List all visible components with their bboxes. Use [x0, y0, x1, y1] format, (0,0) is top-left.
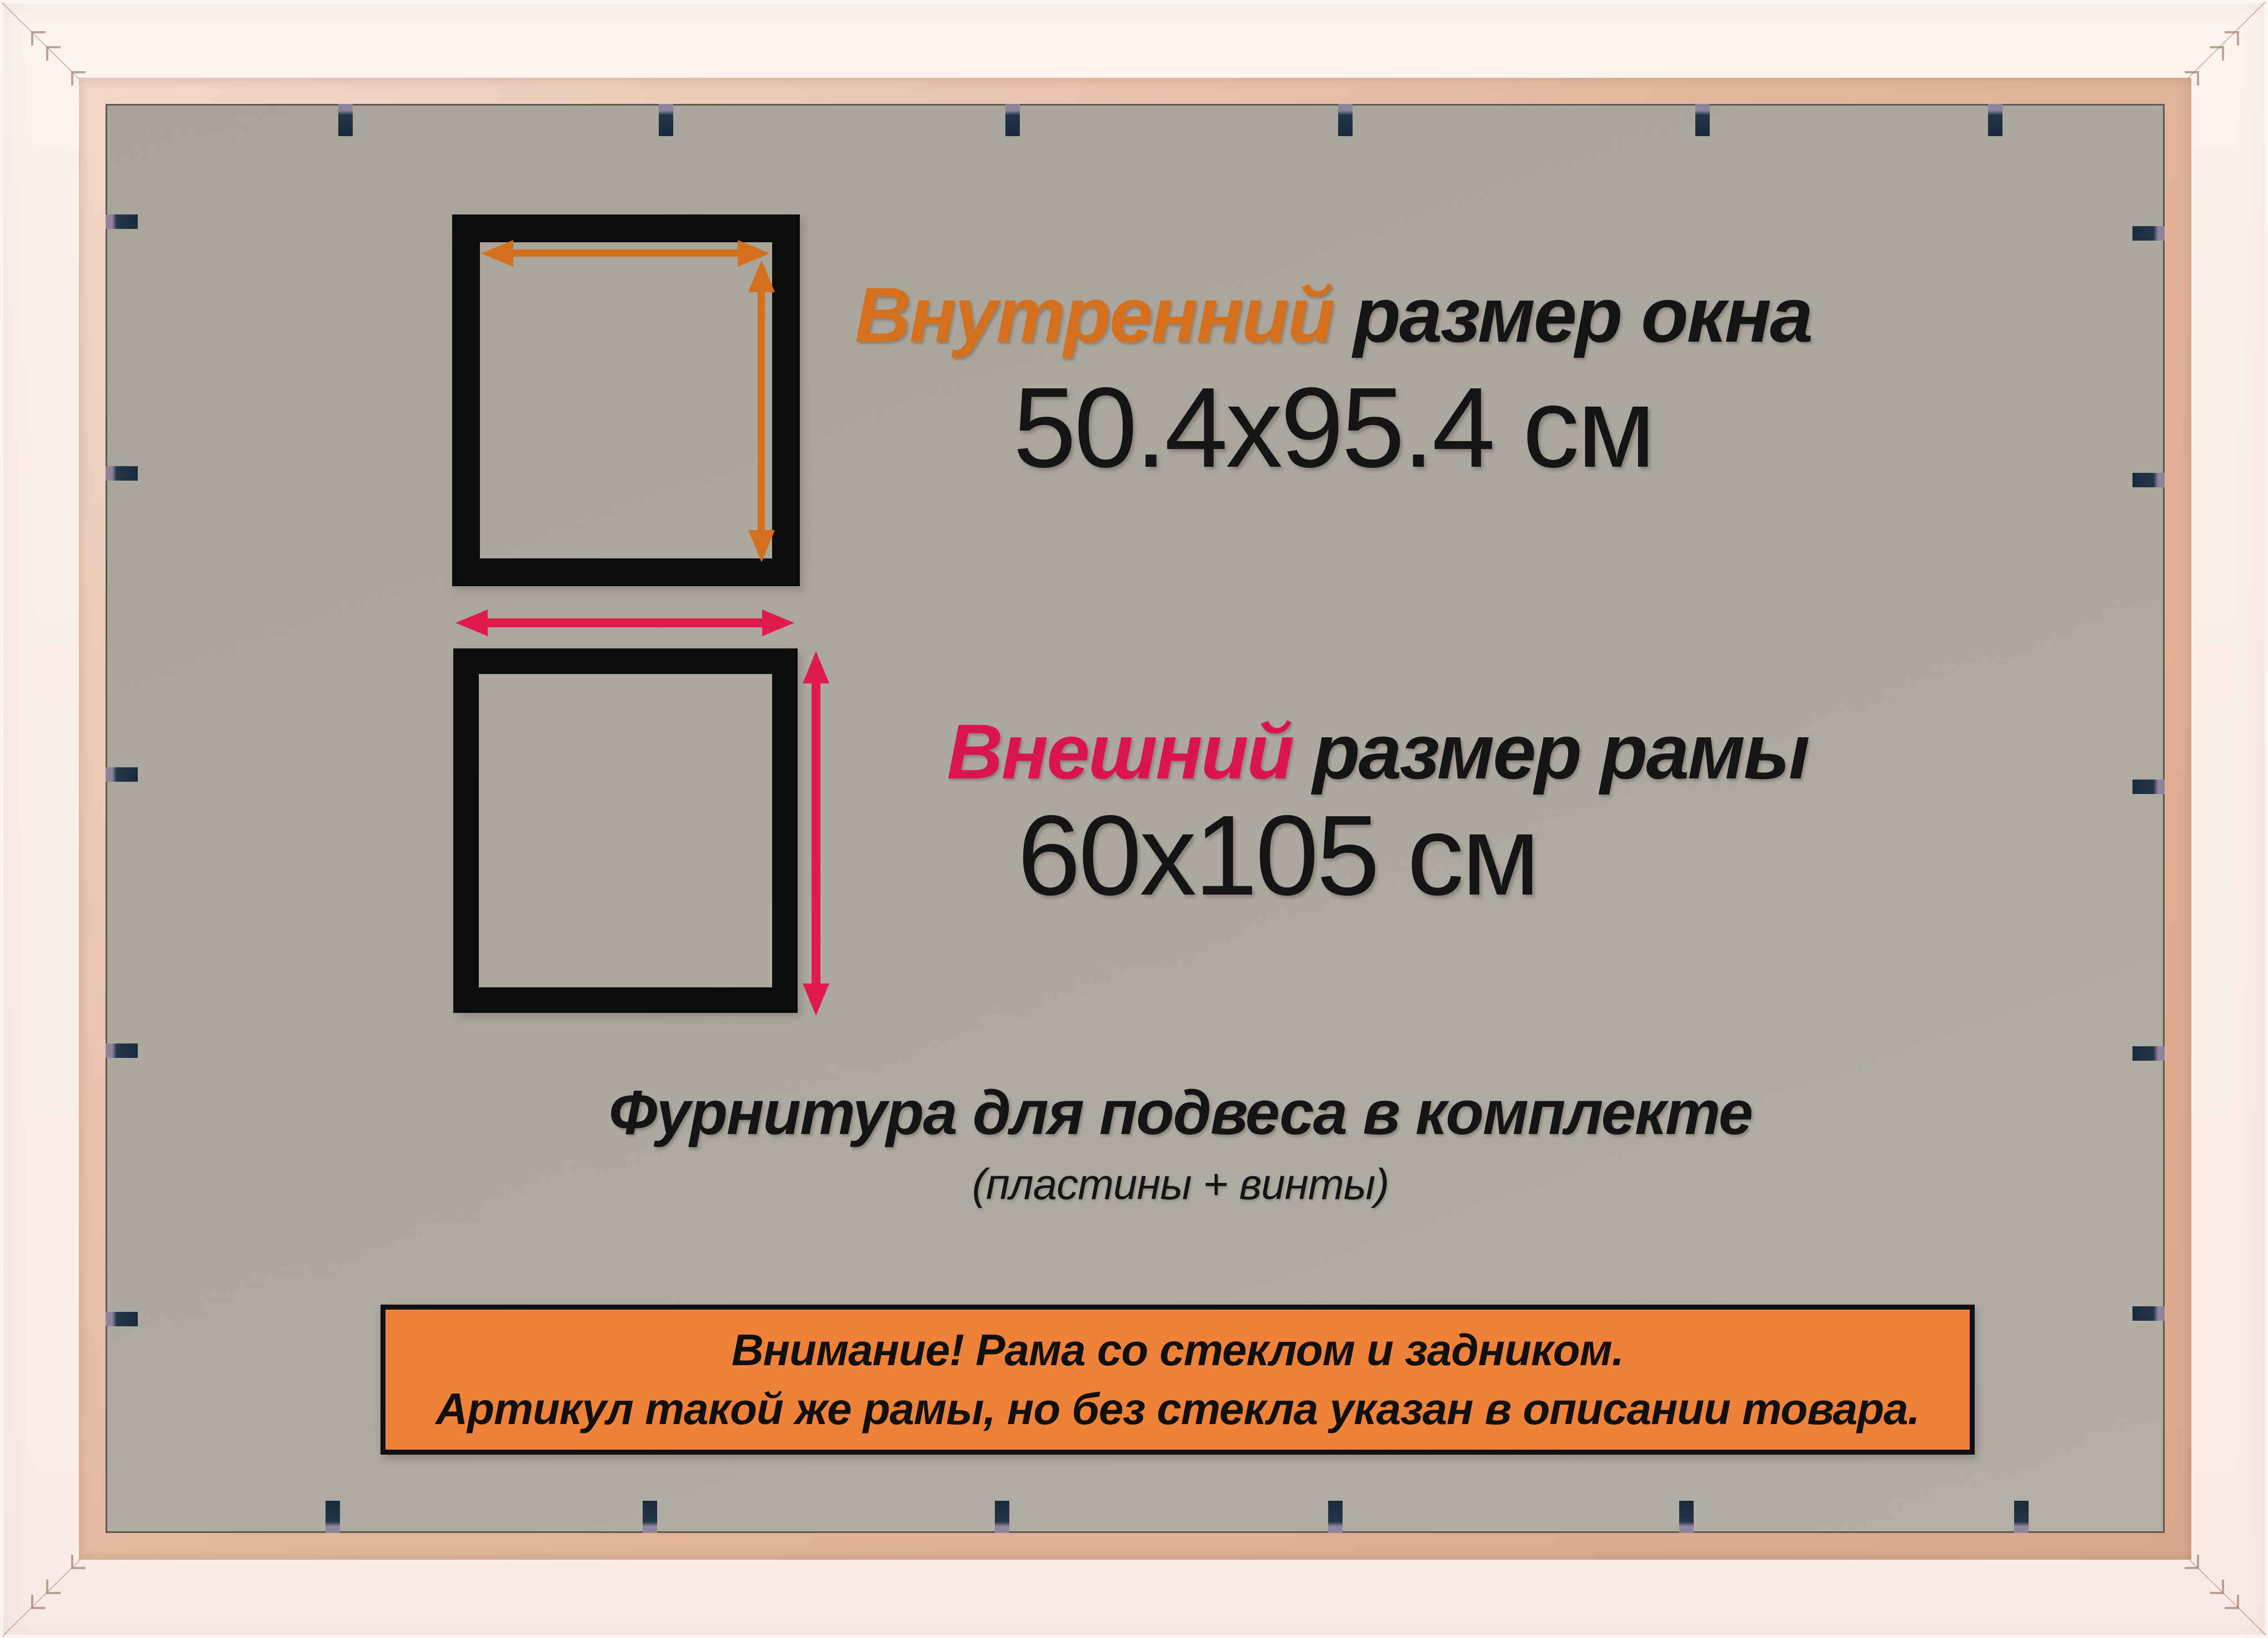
flexi-point-clip [326, 1501, 340, 1533]
flexi-point-clip [643, 1501, 657, 1533]
flexi-point-clip [106, 214, 138, 229]
flexi-point-clip [2132, 1046, 2165, 1061]
flexi-point-clip [106, 466, 138, 481]
flexi-point-clip [1988, 104, 2002, 136]
flexi-point-clip [2132, 1306, 2165, 1321]
flexi-point-clip [2132, 226, 2165, 241]
flexi-point-clip [1338, 104, 1353, 136]
flexi-point-clip [2014, 1501, 2029, 1533]
inner-width-arrow-icon [481, 249, 770, 257]
outer-width-arrow-icon [455, 618, 794, 627]
v-nail-mark [31, 1595, 46, 1609]
hardware-detail-text: (пластины + винты) [555, 1159, 1805, 1210]
flexi-point-clip [1679, 1501, 1694, 1533]
outer-size-heading-rest: размер рамы [1293, 708, 1808, 795]
flexi-point-clip [106, 767, 138, 782]
v-nail-mark [31, 31, 46, 46]
flexi-point-clip [106, 1043, 138, 1058]
v-nail-mark [2225, 1595, 2239, 1609]
outer-size-value: 60x105 см [722, 790, 1833, 921]
flexi-point-clip [659, 104, 673, 136]
flexi-point-clip [2132, 473, 2165, 487]
v-nail-mark [71, 1555, 86, 1569]
notice-banner: Внимание! Рама со стеклом и задником. Ар… [380, 1305, 1975, 1455]
outer-size-heading-accent: Внешний [947, 708, 1293, 795]
inner-size-heading-rest: размер окна [1333, 271, 1811, 358]
v-nail-mark [71, 71, 86, 86]
outer-size-heading: Внешний размер рамы [778, 707, 1977, 797]
flexi-point-clip [995, 1501, 1009, 1533]
v-nail-mark [2210, 46, 2224, 61]
hardware-included-text: Фурнитура для подвеса в комплекте [555, 1077, 1805, 1148]
flexi-point-clip [338, 104, 353, 136]
flexi-point-clip [1005, 104, 1020, 136]
inner-size-value: 50.4x95.4 см [722, 362, 1944, 493]
inner-size-heading-accent: Внутренний [855, 271, 1334, 358]
v-nail-mark [2185, 1555, 2199, 1569]
v-nail-mark [46, 1580, 61, 1594]
v-nail-mark [46, 46, 61, 61]
flexi-point-clip [106, 1312, 138, 1326]
flexi-point-clip [1695, 104, 1710, 136]
v-nail-mark [2185, 71, 2199, 86]
frame-product-image: Внутренний размер окна 50.4x95.4 см Внеш… [0, 0, 2268, 1638]
notice-line-2: Артикул такой же рамы, но без стекла ука… [385, 1380, 1970, 1439]
inner-size-heading: Внутренний размер окна [722, 270, 1944, 360]
flexi-point-clip [2132, 780, 2165, 794]
notice-line-1: Внимание! Рама со стеклом и задником. [385, 1321, 1970, 1380]
v-nail-mark [2225, 31, 2239, 46]
flexi-point-clip [1328, 1501, 1343, 1533]
v-nail-mark [2210, 1580, 2224, 1594]
